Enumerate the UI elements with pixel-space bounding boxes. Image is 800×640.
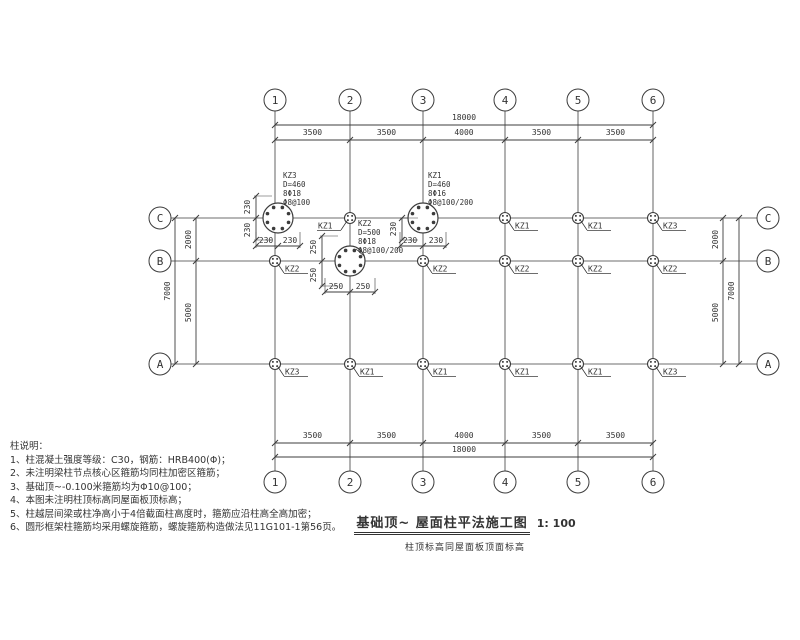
dimension-text: 230 [283,236,298,245]
column-tag: KZ1 [360,368,375,377]
column-tag: KZ2 [433,265,448,274]
label-leader [656,367,662,376]
rebar-dot [650,262,652,264]
rebar-dot [424,258,426,260]
rebar-dot [426,227,430,231]
rebar-dot [654,258,656,260]
axis-1-top-label: 1 [272,94,279,107]
dimension-text: 2000 [184,230,193,249]
drawing-sheet: 112233445566CCBBAA1800035003500400035003… [0,0,800,640]
rebar-dot [272,227,276,231]
rebar-dot [411,221,415,225]
rebar-dot [502,361,504,363]
label-leader [426,264,432,273]
dimension-text: 230 [429,236,444,245]
rebar-dot [579,361,581,363]
dimension-text: 250 [309,240,318,255]
note-line: 4、本图未注明柱顶标高同屋面板顶标高； [10,494,340,508]
drawing-title-block: 基础顶~ 屋面柱平法施工图1: 100 柱顶标高同屋面板顶面标高 [330,512,600,553]
rebar-dot [344,249,348,253]
label-leader [656,221,662,230]
rebar-dot [411,212,415,216]
callout-text: D=500 [358,228,381,237]
rebar-dot [276,361,278,363]
column-tag: KZ2 [588,265,603,274]
axis-5-top-label: 5 [575,94,582,107]
rebar-dot [432,221,436,225]
rebar-dot [502,215,504,217]
rebar-dot [424,365,426,367]
label-leader [353,367,359,376]
rebar-dot [417,206,421,210]
rebar-dot [575,258,577,260]
rebar-dot [359,255,363,259]
axis-C-left-label: C [157,212,164,225]
note-line: 5、柱越层间梁或柱净高小于4倍截面柱高度时，箍筋应沿柱高全高加密； [10,508,340,522]
rebar-dot [351,365,353,367]
dimension-text: 3500 [532,128,551,137]
column-tag: KZ1 [588,368,603,377]
axis-3-bottom-label: 3 [420,476,427,489]
rebar-dot [579,258,581,260]
axis-B-left-label: B [157,255,164,268]
callout-text: KZ1 [428,171,442,180]
rebar-dot [276,365,278,367]
rebar-dot [432,212,436,216]
label-leader [278,367,284,376]
dimension-text: 230 [243,200,252,215]
rebar-dot [502,219,504,221]
label-leader [426,367,432,376]
dimension-text: 250 [329,282,344,291]
dimension-text: 230 [403,236,418,245]
drawing-scale: 1: 100 [537,517,576,530]
dimension-text: 230 [259,236,274,245]
axis-A-left-label: A [157,358,164,371]
rebar-dot [338,255,342,259]
column-tag: KZ1 [588,222,603,231]
dimension-text: 250 [309,268,318,283]
label-leader [341,221,347,230]
callout-text: KZ2 [358,219,372,228]
axis-2-bottom-label: 2 [347,476,354,489]
dimension-text: 3500 [606,128,625,137]
column-tag: KZ3 [663,222,678,231]
dimension-text: 230 [243,223,252,238]
dimension-text: 18000 [452,445,476,454]
column-notes: 柱说明： 1、柱混凝土强度等级：C30，钢筋：HRB400(Φ)； 2、未注明梁… [10,440,340,535]
rebar-dot [650,219,652,221]
axis-4-bottom-label: 4 [502,476,509,489]
rebar-dot [424,361,426,363]
rebar-dot [347,215,349,217]
rebar-dot [654,262,656,264]
axis-3-top-label: 3 [420,94,427,107]
callout-text: Φ8@100/200 [428,198,474,207]
axis-2-top-label: 2 [347,94,354,107]
axis-6-bottom-label: 6 [650,476,657,489]
rebar-dot [347,365,349,367]
column-tag: KZ3 [285,368,300,377]
rebar-dot [575,262,577,264]
rebar-dot [272,262,274,264]
label-leader [508,367,514,376]
rebar-dot [506,215,508,217]
rebar-dot [506,361,508,363]
rebar-dot [506,219,508,221]
rebar-dot [650,365,652,367]
column-tag: KZ1 [515,222,530,231]
column-tag: KZ1 [318,222,333,231]
rebar-dot [359,264,363,268]
column-tag: KZ1 [515,368,530,377]
rebar-dot [420,361,422,363]
note-line: 3、基础顶~-0.100米箍筋均为Φ10@100； [10,481,340,495]
dimension-text: 3500 [303,128,322,137]
rebar-dot [347,219,349,221]
dimension-text: 3500 [606,431,625,440]
rebar-dot [506,262,508,264]
rebar-dot [575,215,577,217]
dimension-text: 4000 [454,128,473,137]
callout-text: D=460 [283,180,306,189]
rebar-dot [575,361,577,363]
callout-text: Φ8@100 [283,198,311,207]
rebar-dot [272,258,274,260]
rebar-dot [287,212,291,216]
rebar-dot [272,365,274,367]
rebar-dot [417,227,421,231]
dimension-text: 3500 [377,431,396,440]
rebar-dot [654,365,656,367]
axis-A-right-label: A [765,358,772,371]
dimension-text: 7000 [163,281,172,300]
dimension-text: 2000 [711,230,720,249]
rebar-dot [654,219,656,221]
label-leader [278,264,284,273]
column-tag: KZ3 [663,368,678,377]
rebar-dot [344,270,348,274]
dimension-text: 7000 [727,281,736,300]
dimension-text: 18000 [452,113,476,122]
callout-text: D=460 [428,180,451,189]
rebar-dot [502,365,504,367]
note-line: 6、圆形框架柱箍筋均采用螺旋箍筋，螺旋箍筋构造做法见11G101-1第56页。 [10,521,340,535]
callout-text: 8Φ16 [428,189,447,198]
label-leader [581,264,587,273]
column-tag: KZ1 [433,368,448,377]
rebar-dot [502,258,504,260]
rebar-dot [281,227,285,231]
label-leader [656,264,662,273]
rebar-dot [575,365,577,367]
dimension-text: 5000 [711,303,720,322]
rebar-dot [420,258,422,260]
rebar-dot [650,258,652,260]
callout-text: 8Φ18 [283,189,302,198]
rebar-dot [506,365,508,367]
rebar-dot [579,219,581,221]
rebar-dot [351,215,353,217]
rebar-dot [353,270,357,274]
rebar-dot [266,221,270,225]
dimension-text: 3500 [303,431,322,440]
dimension-text: 5000 [184,303,193,322]
rebar-dot [266,212,270,216]
callout-text: Φ8@100/200 [358,246,404,255]
rebar-dot [575,219,577,221]
rebar-dot [579,262,581,264]
rebar-dot [424,262,426,264]
dimension-text: 3500 [532,431,551,440]
rebar-dot [338,264,342,268]
rebar-dot [351,219,353,221]
rebar-dot [272,206,276,210]
rebar-dot [420,262,422,264]
axis-4-top-label: 4 [502,94,509,107]
rebar-dot [654,361,656,363]
axis-B-right-label: B [765,255,772,268]
rebar-dot [650,361,652,363]
rebar-dot [502,262,504,264]
label-leader [581,367,587,376]
rebar-dot [420,365,422,367]
rebar-dot [287,221,291,225]
note-line: 2、未注明梁柱节点核心区箍筋均同柱加密区箍筋； [10,467,340,481]
callout-text: 8Φ18 [358,237,377,246]
rebar-dot [506,258,508,260]
axis-6-top-label: 6 [650,94,657,107]
axis-5-bottom-label: 5 [575,476,582,489]
column-tag: KZ2 [663,265,678,274]
rebar-dot [579,365,581,367]
rebar-dot [353,249,357,253]
column-tag: KZ2 [515,265,530,274]
label-leader [508,221,514,230]
column-tag: KZ2 [285,265,300,274]
rebar-dot [276,258,278,260]
rebar-dot [276,262,278,264]
dimension-text: 3500 [377,128,396,137]
label-leader [508,264,514,273]
dimension-text: 250 [356,282,371,291]
note-line: 1、柱混凝土强度等级：C30，钢筋：HRB400(Φ)； [10,454,340,468]
axis-C-right-label: C [765,212,772,225]
dimension-text: 230 [389,222,398,237]
rebar-dot [654,215,656,217]
notes-title: 柱说明： [10,440,340,454]
rebar-dot [579,215,581,217]
dimension-text: 4000 [454,431,473,440]
label-leader [581,221,587,230]
callout-text: KZ3 [283,171,297,180]
drawing-title: 基础顶~ 屋面柱平法施工图 [354,512,529,535]
rebar-dot [650,215,652,217]
drawing-subtitle: 柱顶标高同屋面板顶面标高 [330,540,600,553]
rebar-dot [272,361,274,363]
rebar-dot [347,361,349,363]
rebar-dot [351,361,353,363]
